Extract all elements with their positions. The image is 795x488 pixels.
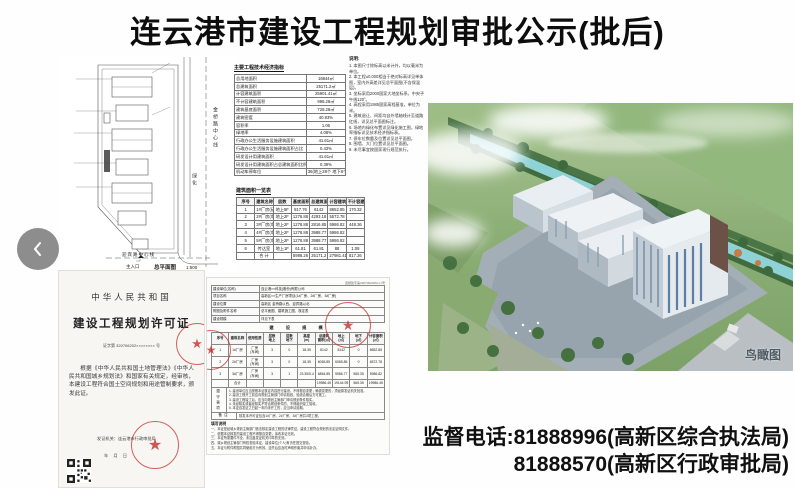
table-row: 6传达室地上1F61.8161.81881.08: [237, 244, 365, 252]
table-row: 容积率1.06: [235, 121, 346, 129]
table-row: 序号建筑名称使用性质层数 地上层数 地下高度 (m)总建筑 面积(㎡)地上 (㎡…: [212, 333, 385, 345]
table-row: 项目名称高新区××生产厂房项目(1#厂房、2#厂房、3#厂房): [212, 293, 385, 300]
carousel-prev-button[interactable]: [17, 228, 59, 270]
table-row: 机动车停车位36(地上28个 地下8个): [235, 168, 346, 176]
indicators-panel: 主要工程技术经济指标 总用地面积16844㎡总建筑面积25171.2㎡计容建筑面…: [234, 56, 346, 176]
table-row: 22#厂房厂房 (车间)3018.356065.856065.8506572.7…: [212, 356, 385, 368]
road-bottom-label: 迎宾路中心线: [122, 252, 155, 258]
table-row: 总用地面积16844㎡: [235, 75, 346, 83]
table-row: 行政办公生活服务设施建筑面积41.61㎡: [235, 137, 346, 145]
aerial-scene: [428, 103, 793, 371]
chevron-left-icon: [30, 241, 46, 257]
plan-notes: 说明: 1. 本图尺寸除标高以米计外，均以毫米为单位。2. 本工程±0.000相…: [349, 56, 426, 176]
list-item: 5. 建筑退让、间距均自外墙轴线计至道路红线，详见总平面图标注。: [349, 113, 426, 124]
certificate-number: 证字第 320706202×××××××× 号: [69, 343, 194, 349]
remark-section: 备注 核发本许可证包含1#厂房、2#厂房、3#厂房共3项工程。: [211, 413, 385, 420]
certificate-body: 根据《中华人民共和国土地管理法》《中华人民共和国城乡规划法》和国家有关规定，经审…: [69, 365, 194, 398]
remark-value: 核发本许可证包含1#厂房、2#厂房、3#厂房共3项工程。: [237, 413, 384, 419]
certificate-country: 中华人民共和国: [69, 291, 194, 303]
certificate-issuer: 发证机关：连云港市行政审批局: [97, 436, 156, 442]
supervision-phones: 监督电话:81888996(高新区综合执法局) 81888570(高新区行政审批…: [359, 424, 789, 478]
area-table: 序号建筑名称层数基底面积 (㎡)总建筑面积 (㎡)计容建筑面积 (㎡)不计容建筑…: [236, 197, 365, 260]
list-item: 6. 场地内绿化布置详见绿化施工图，绿地率指标详见技术经济指标表。: [349, 125, 426, 136]
table-row: 绿地率4.08%: [235, 129, 346, 137]
table-row: 附图及附件名称总平面图、建筑施工图、核定表: [212, 308, 385, 315]
table-row: 建设位置高新区 金桥路以西、迎宾路以北: [212, 300, 385, 307]
aerial-rendering: 鸟瞰图: [428, 103, 793, 371]
scale-section-title: 建 设 规 模: [211, 325, 385, 331]
list-item: 9. 未尽事宜按国家现行规范执行。: [349, 147, 426, 153]
indicators-table: 总用地面积16844㎡总建筑面积25171.2㎡计容建筑面积25901.41㎡不…: [234, 74, 346, 176]
list-item: 1. 本图尺寸除标高以米计外，均以毫米为单位。: [349, 63, 426, 74]
issuer-seal: ★: [131, 421, 179, 469]
table-row: 11#厂房厂房 (车间)3018.358142814208652.85: [212, 344, 385, 356]
area-table-panel: 建筑面积一览表 序号建筑名称层数基底面积 (㎡)总建筑面积 (㎡)计容建筑面积 …: [236, 179, 365, 272]
page-title: 连云港市建设工程规划审批公示(批后): [0, 7, 795, 52]
list-item: 3. 坐标采用2000国家大地坐标系，中央子午线120°。: [349, 91, 426, 102]
planning-permit-certificate: 中华人民共和国 建设工程规划许可证 证字第 320706202×××××××× …: [58, 270, 205, 488]
table-row: 建筑密度40.93%: [235, 113, 346, 121]
table-row: 计容建筑面积25901.41㎡: [235, 90, 346, 98]
table-row: 44#厂房(车间)地上2F1276.883988.775986.82: [237, 229, 365, 237]
table-row: 合计19986.4519144.95565.3519986.45: [212, 380, 385, 387]
table-row: 研发设计用建筑面积41.61㎡: [235, 152, 346, 160]
qr-code: [67, 459, 91, 483]
certificate-date: 年 月 日: [104, 453, 129, 459]
table-row: 33#厂房厂房 (车间)3123.35/5.46864.855986.77565…: [212, 368, 385, 380]
site-plan-drawing: 金桥路中心线 绿化 迎宾路中心线 主入口 总平面图 1:500: [60, 55, 236, 273]
list-item: 5. 本证自发证之日起一年内未开工的，应当申请延期。: [229, 406, 382, 410]
phone-line-2: 81888570(高新区行政审批局): [359, 451, 789, 478]
phone-line-1: 监督电话:81888996(高新区综合执法局): [359, 424, 789, 451]
notes-title: 说明:: [349, 56, 426, 62]
list-item: 2. 本工程±0.000相当于绝对标高详见单体图，室内外高差详见总平面图(不含保…: [349, 74, 426, 91]
table-row: 建设规模详见下表: [212, 315, 385, 322]
table-row: 研发设计用建筑面积占总建筑面积比例0.39%: [235, 160, 346, 168]
table-row: 不计容建筑面积998.28㎡: [235, 98, 346, 106]
list-item: 4. 高程采用1985国家高程基准，单位为米。: [349, 102, 426, 113]
observe-section: 遵守事项 1. 建设单位应当按照本证核定内容进行建设，不得擅自变更；确需变更的，…: [211, 388, 385, 413]
scale-table: 序号建筑名称使用性质层数 地上层数 地下高度 (m)总建筑 面积(㎡)地上 (㎡…: [211, 332, 385, 388]
site-plan-linework: [60, 55, 236, 273]
observe-label: 遵守事项: [212, 388, 227, 412]
table-row: 总建筑面积25171.2㎡: [235, 82, 346, 90]
table-row: 建筑基底面积728.28㎡: [235, 106, 346, 114]
permit-fields-table: 建设单位(名称)连云港××科技(股份)有限公司项目名称高新区××生产厂房项目(1…: [211, 285, 385, 323]
table-row: 33#厂房(车间)地上2F1276.882816.855986.82448.36: [237, 221, 365, 229]
certificate-title: 建设工程规划许可证: [69, 315, 194, 331]
table-row: 合 计5986.2625171.227981.41817.26: [237, 252, 365, 260]
table-row: 11#厂房(研发楼)地上5F817.7661428652.85170.32: [237, 205, 365, 213]
remark-label: 备注: [212, 413, 237, 419]
notice-page: 连云港市建设工程规划审批公示(批后): [0, 0, 795, 488]
road-right-label: 金桥路中心线: [212, 107, 219, 149]
observe-lines: 1. 建设单位应当按照本证核定内容进行建设，不得擅自变更；确需变更的，须经原发证…: [227, 388, 384, 412]
table-row: 55#厂房(车间)地上2F1276.883988.775986.82: [237, 236, 365, 244]
area-table-title: 建筑面积一览表: [236, 187, 271, 195]
green-area-label: 绿化: [191, 173, 198, 187]
table-row: 建设单位(名称)连云港××科技(股份)有限公司: [212, 286, 385, 293]
table-row: 序号建筑名称层数基底面积 (㎡)总建筑面积 (㎡)计容建筑面积 (㎡)不计容建筑…: [237, 198, 365, 206]
table-row: 22#厂房(车间)地上2F1276.884293.185572.78: [237, 213, 365, 221]
aerial-caption: 鸟瞰图: [745, 346, 781, 363]
table-row: 行政办公生活服务设施建筑面积占比0.43%: [235, 145, 346, 153]
indicators-title: 主要工程技术经济指标: [234, 64, 284, 72]
notes-lines: 1. 本图尺寸除标高以米计外，均以毫米为单位。2. 本工程±0.000相当于绝对…: [349, 63, 426, 153]
